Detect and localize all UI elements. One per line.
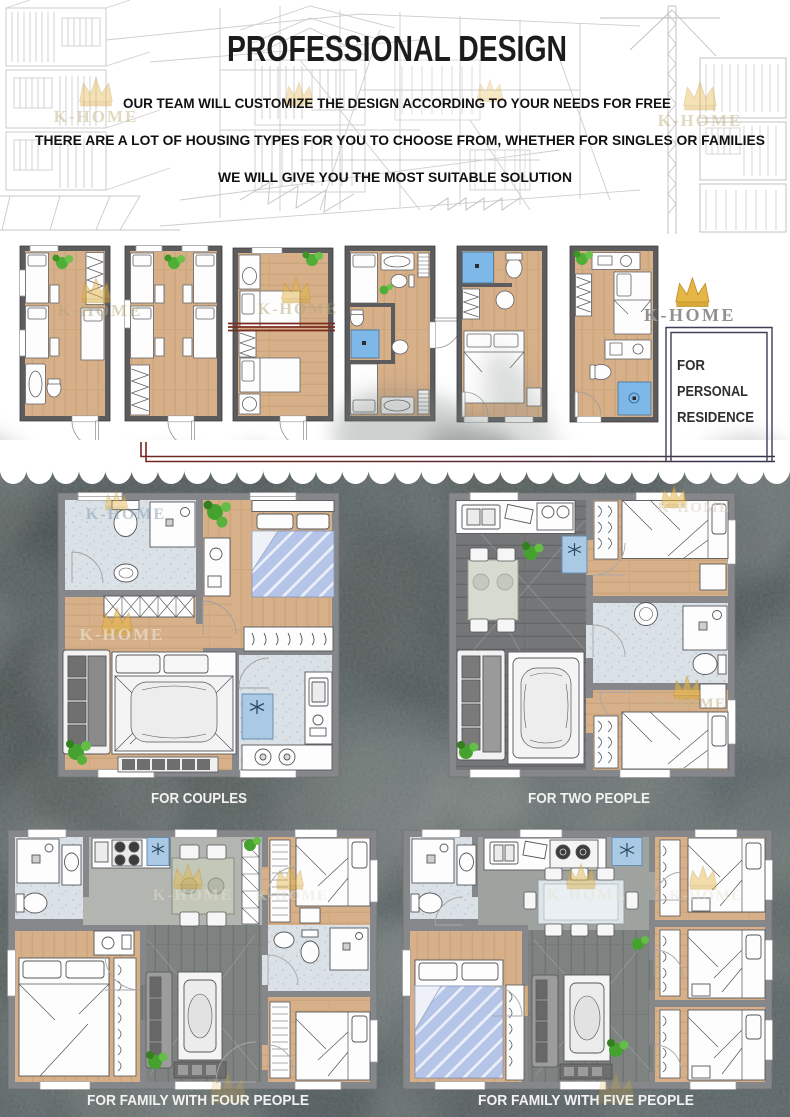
svg-text:K-HOME: K-HOME	[547, 887, 627, 904]
svg-text:K-HOME: K-HOME	[255, 888, 328, 904]
svg-text:K-HOME: K-HOME	[80, 625, 165, 644]
svg-text:THERE ARE A LOT OF HOUSING TYP: THERE ARE A LOT OF HOUSING TYPES FOR YOU…	[35, 132, 765, 148]
svg-text:K-HOME: K-HOME	[658, 111, 743, 130]
svg-text:K-HOME: K-HOME	[153, 887, 233, 904]
svg-text:WE WILL GIVE YOU THE MOST SUIT: WE WILL GIVE YOU THE MOST SUITABLE SOLUT…	[218, 169, 572, 185]
svg-text:K-HOME: K-HOME	[58, 301, 143, 320]
svg-text:K-HOME: K-HOME	[657, 500, 730, 516]
svg-text:K-HOME: K-HOME	[653, 696, 726, 712]
svg-text:FOR TWO PEOPLE: FOR TWO PEOPLE	[528, 790, 650, 807]
svg-text:RESIDENCE: RESIDENCE	[677, 410, 754, 426]
svg-text:PERSONAL: PERSONAL	[677, 384, 748, 400]
svg-text:K-HOME: K-HOME	[86, 506, 166, 523]
svg-text:OUR TEAM WILL CUSTOMIZE THE DE: OUR TEAM WILL CUSTOMIZE THE DESIGN ACCOR…	[123, 95, 671, 111]
svg-text:FOR FAMILY WITH FIVE PEOPLE: FOR FAMILY WITH FIVE PEOPLE	[478, 1092, 694, 1109]
svg-text:FOR COUPLES: FOR COUPLES	[151, 790, 247, 807]
svg-text:K-HOME: K-HOME	[644, 305, 736, 325]
svg-text:FOR: FOR	[677, 358, 705, 374]
svg-text:K-HOME: K-HOME	[258, 301, 338, 318]
svg-text:PROFESSIONAL DESIGN: PROFESSIONAL DESIGN	[227, 28, 567, 69]
svg-text:K-HOME: K-HOME	[669, 888, 742, 904]
svg-text:FOR FAMILY WITH FOUR PEOPLE: FOR FAMILY WITH FOUR PEOPLE	[87, 1092, 309, 1109]
